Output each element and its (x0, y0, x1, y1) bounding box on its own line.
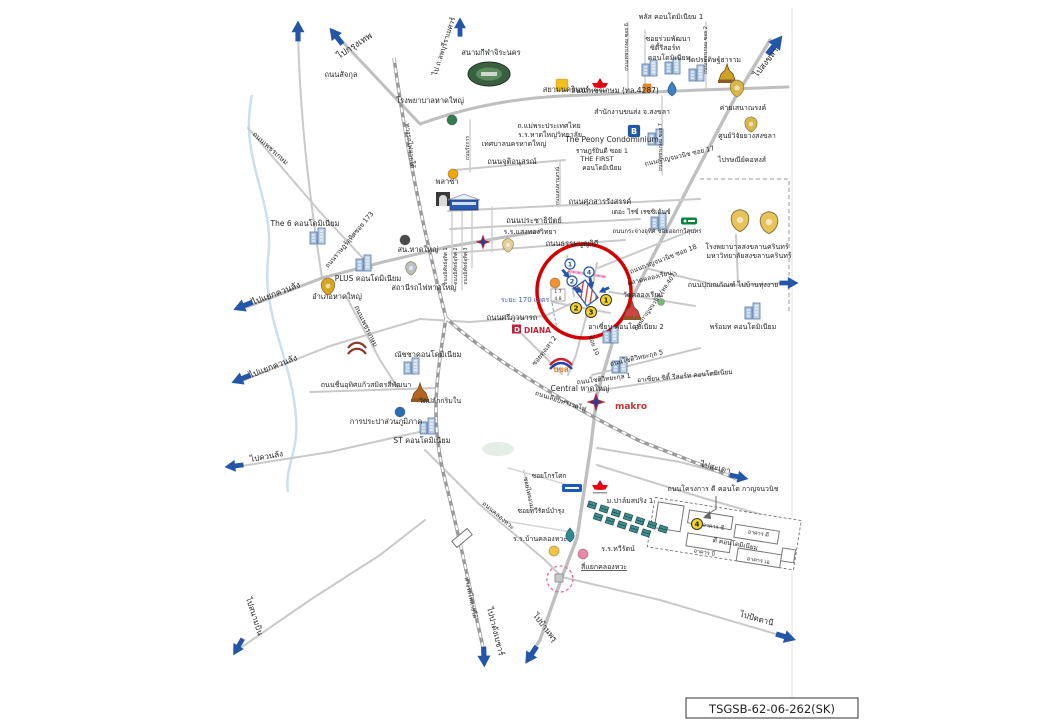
map-label: ซอยโกรโศก (532, 472, 567, 480)
isuzu-dealer-sign-icon (562, 484, 582, 492)
map-label: ซอยไทรงาม (522, 476, 536, 509)
marker-number: 2 (574, 305, 579, 313)
map-label: ถนนประชาธิปัตย์ (506, 216, 562, 225)
map-label: 4.8 (554, 296, 561, 302)
map-label: ถนนคลองหวะ (481, 500, 517, 532)
map-label: ถนนนิพัทธ์อุทิศ 3 (462, 247, 469, 284)
palm-spring-house-icon (587, 501, 596, 509)
direction-arrow-icon (477, 646, 491, 667)
natcha-condo-icon (404, 358, 419, 374)
map-label: ถนนเพชรเกษม (352, 304, 379, 348)
map-label: ไปแยกควนลัง (249, 279, 301, 308)
doc-ref-text: TSGSB-62-06-262(SK) (708, 702, 835, 716)
waterworks-office-icon (395, 407, 405, 417)
water-utility-icon (668, 82, 676, 96)
map-label: ราษฎร์ยินดี ซอย 1 (576, 147, 628, 155)
jiranakorn-stadium-icon (468, 62, 510, 86)
map-label: ซอย 10 (587, 335, 601, 357)
site-marker-yellow-icon: 4 (692, 519, 703, 530)
site-marker-yellow-icon: 2 (571, 303, 582, 314)
map-label: ม.ปาล์มสปริง 1 (607, 497, 654, 505)
map-label: ถนนชื่นอุทิศแก้วสมิตรสี่พัฒนา (321, 380, 411, 389)
map-label: ณัชชาคอนโดมิเนียม (395, 350, 462, 359)
map-label: makro (615, 402, 647, 412)
thaweerat-school-icon (578, 549, 588, 559)
prompt-condo-icon (745, 303, 760, 319)
map-label: ถนนเพชรเกษม ซอย 6 (624, 23, 630, 71)
map-label: 1 7 (554, 289, 561, 295)
palm-spring-house-icon (605, 517, 614, 525)
map-label: ถนนเพชรเกษม ซอย 2 (703, 26, 709, 74)
direction-arrow-icon (520, 643, 542, 668)
palm-spring-house-icon (635, 517, 644, 525)
hatyai-police-station-icon (400, 235, 410, 245)
map-label: พร้อมท คอนโดมิเนียม (710, 322, 777, 331)
shrine-icon (503, 239, 514, 253)
plaza-building-icon (436, 192, 450, 206)
palm-spring-house-icon (629, 525, 638, 533)
wat-pradit-tharam-icon (718, 64, 736, 83)
map-label: ไปบ้านพรุ (530, 611, 559, 644)
map-label: อาเซี่ยน ซิตี้ รีสอร์ท คอนโดมิเนียม (637, 367, 733, 384)
mitsubishi-motors-sign-icon (592, 480, 608, 494)
map-label: ถนนธรรมนูญวิถี (546, 239, 599, 248)
route-marker-blue-icon: 1 (565, 259, 575, 269)
direction-arrow-icon (779, 277, 798, 289)
senanarong-camp-crest-icon (730, 80, 744, 97)
map-label: ไปแยกควนลัง (246, 352, 298, 381)
direction-arrow-icon (728, 469, 749, 485)
map-label: ถ.แม่พระประเทศไทย (517, 121, 580, 130)
direction-arrow-icon (228, 636, 248, 659)
map-label: ถนนจุติอนุสรณ์ (487, 157, 536, 166)
map-label: คอนโดมิเนียม (648, 53, 691, 62)
lotus-store-icon (681, 218, 697, 225)
map-label: ถนนปุณณกัณฑ์ ไปบ้านทุ่งงาย (688, 280, 779, 289)
map-label: ไปรษณีย์คอหงส์ (717, 155, 767, 164)
direction-arrow-icon (292, 21, 305, 42)
central-festival-logo-icon (588, 394, 604, 410)
map-label: ถนนเพชรเกษม (ทล.4287) (571, 86, 659, 95)
palm-spring-house-icon (593, 513, 602, 521)
site-marker-yellow-icon: 3 (586, 307, 597, 318)
map-labels-layer: ไปกรุงเทพถนนสัจกุลสนามกีฬาจิระนครโรงพยาบ… (244, 12, 792, 657)
map-label: THE FIRST (579, 155, 613, 163)
map-label: เทศบาลนครหาดใหญ่ (482, 139, 546, 148)
map-label: สำนักงานขนส่ง จ.สงขลา (594, 108, 670, 116)
map-label: ถนนโครงการ ดี คอนโด กาญจนวนิช (667, 484, 778, 493)
direction-arrow-icon (597, 284, 610, 295)
map-label: The Peony Condominium (564, 135, 659, 144)
map-label: ถนนเพชรเกษม (251, 130, 290, 166)
ban-khlong-wa-school-icon (549, 546, 559, 556)
palm-spring-house-icon (641, 529, 650, 537)
marker-number: 4 (587, 269, 592, 277)
map-label: วัดประดิษฐ์ธาราม (687, 56, 741, 64)
marker-number: 1 (604, 297, 609, 305)
palm-spring-house-icon (617, 521, 626, 529)
psu-university-crest-icon (760, 212, 778, 234)
map-label: ไป ถ.ลพบุรีราเมศวร์ (430, 16, 458, 78)
map-label: ร.ร.ทวีรัตน์ (601, 545, 635, 553)
central-department-store-icon (477, 236, 490, 249)
site-parcel-icon (574, 280, 598, 306)
fuel-station-icon (550, 278, 560, 288)
map-label: การประปาส่วนภูมิภาค (350, 417, 423, 426)
map-label: ถนนนิพัทธ์อุทิศ 1 (442, 247, 449, 284)
palm-spring-house-icon (611, 509, 620, 517)
map-label: ถนนกระจ่างอุทิศ ซอยออกกวีสุนทร (613, 227, 703, 235)
hatyai-location-map: BD 1234124 ไปกรุงเทพถนนสัจกุลสนามกีฬาจิร… (0, 0, 1040, 720)
direction-arrow-icon (774, 628, 798, 647)
map-label: ทางรถไฟสายใต้ (463, 576, 480, 619)
direction-arrow-icon (224, 459, 245, 473)
map-label: สี่แยกคลองหวะ (581, 562, 627, 571)
marker-number: 2 (570, 278, 575, 286)
map-label: โรงพยาบาลสงขลานครินทร์ (705, 242, 789, 251)
police-crest-icon (406, 262, 417, 276)
ruam-pattana-condo-icon (689, 65, 704, 81)
pond (482, 442, 514, 456)
psu-hospital-crest-icon (731, 210, 749, 232)
map-label: The 6 คอนโดมิเนียม (269, 219, 339, 228)
marker-number: 1 (568, 261, 573, 269)
flyover-icon (348, 343, 366, 354)
doc-ref-box: TSGSB-62-06-262(SK) (686, 698, 858, 718)
map-label: ไปสะเดา (699, 460, 732, 476)
route-marker-blue-icon: 4 (584, 267, 594, 277)
map-label: อาเซี่ยน คอนโดมิเนียม 2 (588, 322, 664, 331)
map-label: ซอยทวีรัตน์บำรุง (518, 507, 565, 515)
map-label: พลัส คอนโดมิเนียม 1 (639, 12, 704, 21)
map-label: ไปสนามบิน (244, 595, 265, 637)
diana-store-logo-icon: D (512, 325, 521, 335)
map-label: ร.ร.บ้านคลองหวะ (513, 535, 567, 543)
map-label: ไปกรุงเทพ (334, 30, 374, 62)
map-label: สนามกีฬาจิระนคร (461, 48, 520, 57)
map-label: ทางรถไฟสายใต้ (403, 123, 416, 169)
map-label: คอนโดมิเนียม (582, 164, 621, 172)
map-label: บขส (553, 365, 569, 374)
map-label: DIANA (524, 326, 551, 335)
map-label: PLUS คอนโดมิเนียม (335, 274, 402, 283)
map-label: ถนนศุภสารรังสรรค์ (569, 197, 632, 206)
map-label: อำเภอหาดใหญ่ (312, 292, 362, 301)
map-label: Central หาดใหญ่ (551, 384, 610, 393)
hatyai-hospital-icon (447, 115, 457, 125)
road-network (235, 22, 790, 660)
map-label: ถนนเสน่หานุสรณ์ (554, 167, 561, 205)
ptt-station-icon (566, 528, 574, 542)
site-marker-yellow-icon: 1 (601, 295, 612, 306)
map-label: ถนนเพชรเกษม ซอย 7 (658, 123, 664, 171)
palm-spring-house-icon (599, 505, 608, 513)
map-label: ถนนศรีภูวนารถ (487, 313, 538, 322)
map-label: ค่ายเสนาณรงค์ (720, 104, 767, 112)
map-label: ระยะ 170 เมตร (501, 296, 550, 304)
map-label: มหาวิทยาลัยสงขลานครินทร์ (706, 252, 791, 260)
map-label: พลาซ่า (435, 177, 458, 186)
map-label: สน.หาดใหญ่ (397, 245, 438, 254)
municipal-hall-icon (448, 194, 480, 210)
plus1-condo-icon (642, 60, 657, 76)
marker-number: 3 (589, 309, 594, 317)
map-label: ศูนย์วิจัยยางสงขลา (718, 132, 776, 140)
marker-number: 4 (695, 521, 700, 529)
intersection-building-icon (555, 574, 563, 582)
palm-spring-house-icon (623, 513, 632, 521)
direction-arrows-layer (224, 17, 799, 667)
rubber-research-crest-icon (745, 117, 757, 132)
map-label: โรงพยาบาลหาดใหญ่ (396, 96, 464, 105)
map-label: วัดปลักกริมใน (419, 396, 461, 405)
map-label: ถนนรัถการ (465, 136, 471, 160)
map-label: ถนนนิพัทธ์อุทิศ 2 (452, 247, 459, 284)
map-label: ซอยร่วมพัฒนา (645, 35, 690, 43)
svg-text:D: D (514, 326, 520, 334)
map-label: เดอะ ไรซ์ เรซซิเด้นซ์ (612, 208, 672, 216)
map-label: สถานีรถไฟหาดใหญ่ (391, 283, 456, 292)
map-label: ไปปาดังเบซาร์ (485, 605, 507, 657)
dcondo-complex (647, 497, 801, 570)
map-label: ร.ร.แสงทองวิทยา (504, 228, 557, 236)
scanned-map-page: BD 1234124 ไปกรุงเทพถนนสัจกุลสนามกีฬาจิร… (0, 0, 1040, 720)
map-label: ถนนสัจกุล (325, 70, 358, 79)
map-label: ST คอนโดมิเนียม (393, 436, 450, 445)
